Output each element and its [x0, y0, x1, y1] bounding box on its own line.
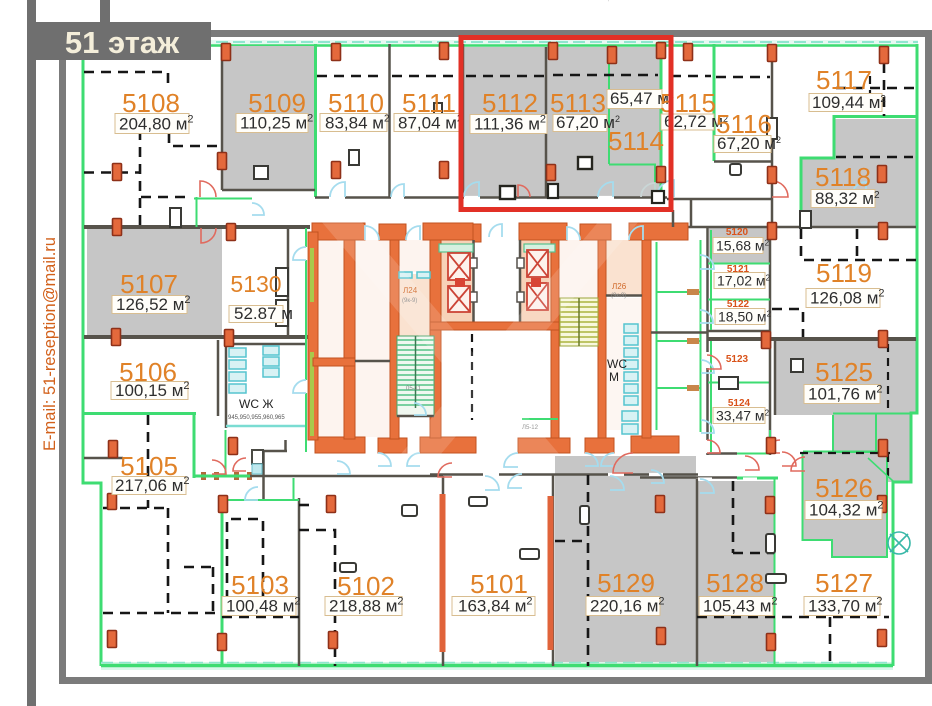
svg-text:83,84 м2: 83,84 м2	[325, 114, 390, 133]
svg-text:17,02 м2: 17,02 м2	[717, 273, 771, 289]
svg-text:104,32 м2: 104,32 м2	[809, 500, 884, 520]
svg-text:217,06 м2: 217,06 м2	[115, 475, 190, 495]
svg-text:100,48 м2: 100,48 м2	[226, 596, 301, 616]
svg-text:5112: 5112	[482, 88, 538, 118]
svg-text:WC: WC	[607, 357, 627, 371]
svg-text:5129: 5129	[597, 568, 655, 598]
svg-text:110,25 м2: 110,25 м2	[240, 113, 313, 133]
svg-text:133,70 м2: 133,70 м2	[808, 596, 883, 616]
svg-text:5103: 5103	[231, 570, 289, 600]
svg-text:5127: 5127	[815, 568, 873, 598]
svg-text:5119: 5119	[816, 258, 872, 288]
svg-text:E-mail: 51-reseption@mail.ru: E-mail: 51-reseption@mail.ru	[41, 237, 59, 451]
svg-text:5118: 5118	[815, 162, 871, 192]
svg-text:204,80 м2: 204,80 м2	[119, 114, 194, 134]
svg-text:218,88 м2: 218,88 м2	[329, 596, 404, 616]
svg-text:87,04 м2: 87,04 м2	[398, 114, 463, 133]
svg-text:5128: 5128	[706, 568, 764, 598]
svg-text:5123: 5123	[726, 354, 749, 365]
svg-text:100,15 м2: 100,15 м2	[115, 380, 190, 400]
svg-text:105,43 м2: 105,43 м2	[703, 596, 778, 616]
svg-text:М: М	[609, 370, 619, 384]
svg-text:WC Ж: WC Ж	[239, 397, 273, 411]
svg-text:126,52 м2: 126,52 м2	[116, 294, 191, 314]
svg-text:126,08 м2: 126,08 м2	[810, 288, 885, 308]
svg-text:(9к-9): (9к-9)	[611, 293, 626, 299]
svg-text:5120: 5120	[726, 227, 749, 238]
svg-text:220,16 м2: 220,16 м2	[590, 596, 665, 616]
svg-text:5101: 5101	[470, 569, 528, 599]
svg-text:945,950,955,960,965: 945,950,955,960,965	[228, 415, 285, 421]
svg-text:109,44 м2: 109,44 м2	[812, 93, 886, 112]
svg-text:15,68 м2: 15,68 м2	[716, 238, 770, 254]
svg-text:33,47 м2: 33,47 м2	[716, 408, 770, 424]
svg-text:51 этаж: 51 этаж	[65, 25, 180, 60]
svg-text:05-11: 05-11	[406, 386, 422, 392]
svg-text:18,50 м2: 18,50 м2	[718, 309, 772, 325]
svg-text:5117: 5117	[816, 65, 872, 95]
svg-text:5125: 5125	[815, 357, 873, 387]
svg-text:111,36 м2: 111,36 м2	[474, 114, 546, 134]
svg-text:5114: 5114	[608, 126, 664, 156]
svg-text:163,84 м2: 163,84 м2	[458, 596, 533, 616]
svg-text:5126: 5126	[815, 473, 873, 503]
svg-text:5130: 5130	[230, 271, 281, 297]
svg-text:Л26: Л26	[612, 282, 627, 291]
svg-text:88,32 м2: 88,32 м2	[815, 189, 880, 208]
svg-text:67,20 м2: 67,20 м2	[717, 134, 781, 153]
svg-text:101,76 м2: 101,76 м2	[808, 384, 883, 404]
svg-text:52.87 м: 52.87 м	[234, 304, 293, 323]
